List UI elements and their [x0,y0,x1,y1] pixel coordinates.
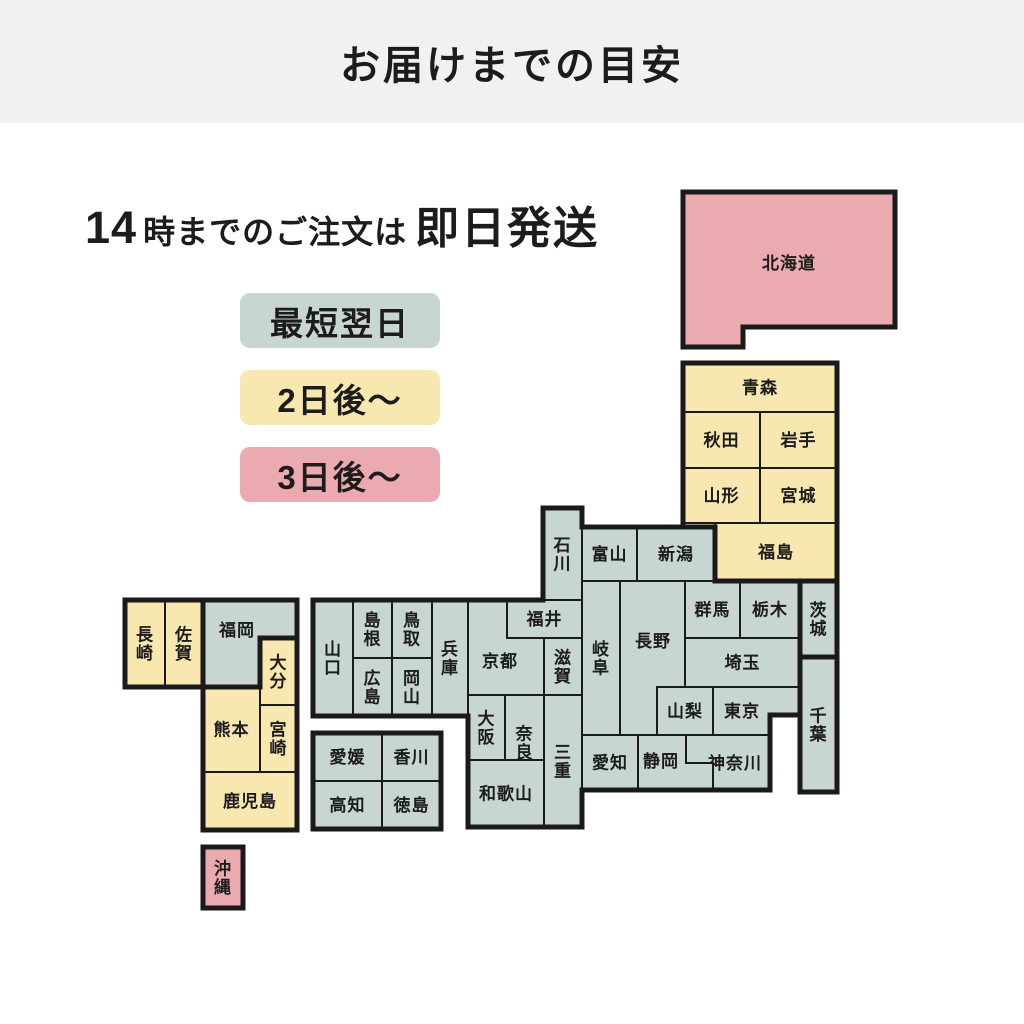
prefecture-label-kagawa: 香川 [394,748,430,767]
prefecture-label-tochigi: 栃木 [752,600,788,620]
prefecture-label-kyoto: 京都 [482,651,518,671]
prefecture-label-hyogo: 兵庫 [441,639,459,678]
prefecture-label-miyazaki: 宮崎 [270,719,288,758]
prefecture-label-niigata: 新潟 [658,544,694,564]
prefecture-label-kochi: 高知 [330,795,366,815]
prefecture-label-ibaraki: 茨城 [810,600,828,639]
prefecture-label-saitama: 埼玉 [725,653,761,673]
prefecture-label-yamaguchi: 山口 [324,640,342,678]
prefecture-label-tottori: 鳥取 [403,610,421,649]
prefecture-label-tokyo: 東京 [724,701,760,721]
prefecture-label-iwate: 岩手 [780,430,817,450]
prefecture-label-okayama: 岡山 [403,669,421,707]
prefecture-label-aomori: 青森 [742,378,778,398]
japan-delivery-map: 北海道青森秋田岩手山形宮城福島新潟富山石川岐阜長野群馬栃木茨城埼玉山梨東京千葉神… [0,0,1024,1024]
prefecture-label-gifu: 岐阜 [592,639,610,678]
prefecture-label-toyama: 富山 [592,544,628,564]
prefecture-label-okinawa: 沖縄 [214,858,232,897]
prefecture-label-chiba: 千葉 [809,706,828,744]
prefecture-label-fukushima: 福島 [757,542,794,562]
prefecture-label-saga: 佐賀 [174,624,193,663]
prefecture-label-mie: 三重 [554,743,572,781]
prefecture-label-yamagata: 山形 [704,486,740,506]
prefecture-label-oita: 大分 [270,652,288,691]
prefecture-label-kanagawa: 神奈川 [708,753,762,773]
prefecture-label-ehime: 愛媛 [330,747,366,767]
prefecture-label-yamanashi: 山梨 [667,701,703,721]
prefecture-label-shimane: 島根 [364,610,382,649]
prefecture-label-ishikawa: 石川 [553,536,572,574]
prefecture-label-tokushima: 徳島 [393,795,430,815]
prefecture-label-kagoshima: 鹿児島 [223,791,277,811]
prefecture-label-hiroshima: 広島 [364,668,382,707]
prefecture-label-nagasaki: 長崎 [136,625,154,663]
prefecture-label-fukuoka: 福岡 [218,620,255,640]
prefecture-label-gunma: 群馬 [695,600,731,620]
prefecture-label-fukui: 福井 [526,609,563,629]
prefecture-label-miyagi: 宮城 [781,486,817,506]
prefecture-label-shizuoka: 静岡 [643,751,679,771]
prefecture-label-nara: 奈良 [515,723,534,762]
prefecture-label-akita: 秋田 [704,430,740,450]
prefecture-label-aichi: 愛知 [592,753,628,773]
prefecture-label-nagano: 長野 [635,632,671,651]
prefecture-label-wakayama: 和歌山 [479,784,533,804]
prefecture-label-hokkaido: 北海道 [762,253,816,273]
prefecture-label-kumamoto: 熊本 [214,720,250,740]
prefecture-label-osaka: 大阪 [478,708,496,747]
prefecture-label-shiga: 滋賀 [553,647,572,686]
